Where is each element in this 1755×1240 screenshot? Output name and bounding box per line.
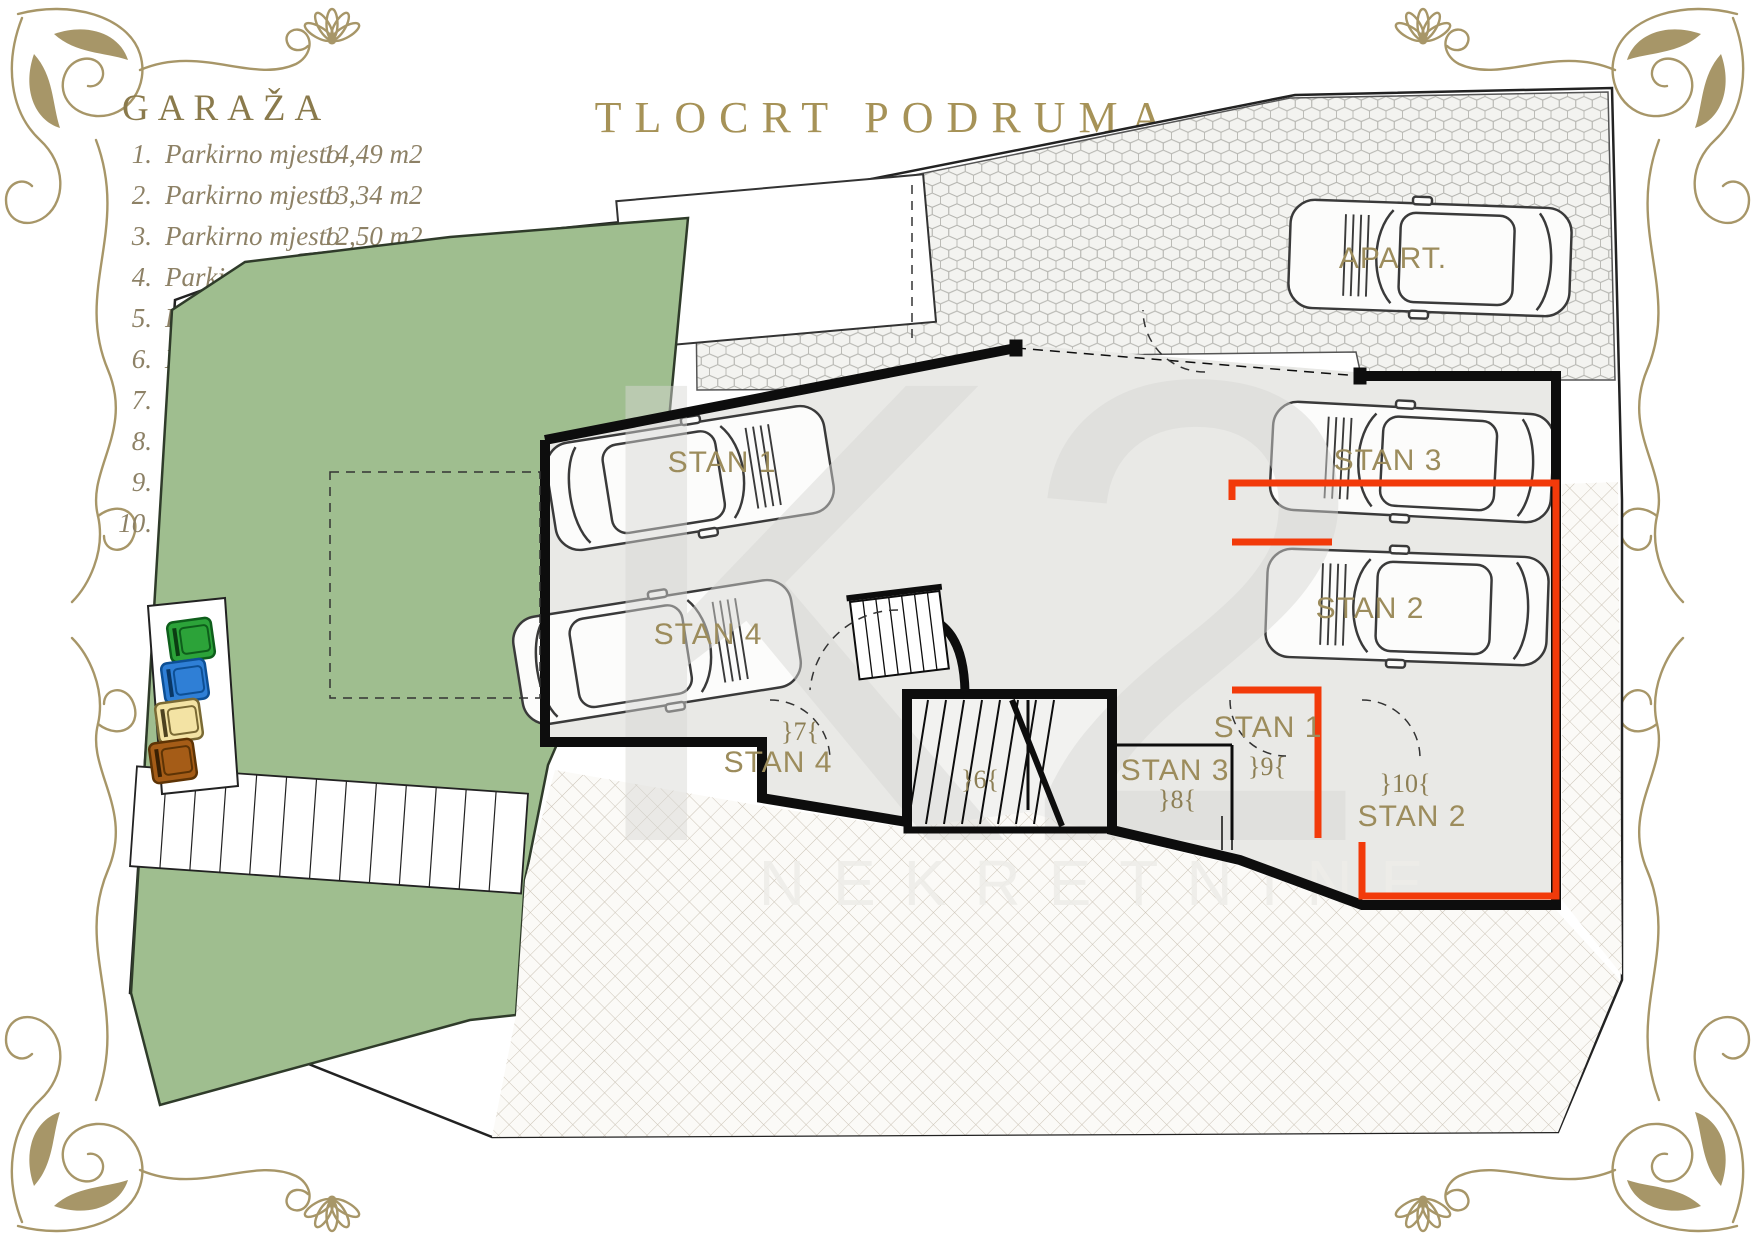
legend-num: 6. bbox=[132, 344, 152, 374]
waste-bin-green bbox=[166, 617, 215, 663]
waste-bin-yellow bbox=[154, 698, 203, 744]
legend-area: 14,49 m2 bbox=[322, 139, 423, 169]
recycling-bins bbox=[148, 598, 238, 794]
room-number-8: }8{ bbox=[1158, 785, 1196, 814]
legend-num: 10. bbox=[118, 508, 152, 538]
room-number-6: }6{ bbox=[961, 765, 999, 794]
page-title: TLOCRT PODRUMA bbox=[595, 93, 1176, 142]
legend-area: 13,34 m2 bbox=[322, 180, 423, 210]
label-room-stan4: STAN 4 bbox=[724, 746, 833, 779]
label-room-stan2: STAN 2 bbox=[1358, 800, 1467, 833]
legend-row: 1. Parkirno mjesto 14,49 m2 bbox=[132, 139, 423, 169]
legend-num: 3. bbox=[131, 221, 152, 251]
room-number-7: }7{ bbox=[781, 717, 819, 746]
watermark-text: NEKRETNINE bbox=[759, 847, 1452, 919]
label-parking-stan4: STAN 4 bbox=[654, 618, 763, 651]
legend-num: 7. bbox=[132, 385, 152, 415]
legend-num: 9. bbox=[132, 467, 152, 497]
unexcavated-hatch-right bbox=[1562, 482, 1622, 975]
legend-row: 2. Parkirno mjesto 13,34 m2 bbox=[132, 180, 423, 210]
legend-num: 5. bbox=[132, 303, 152, 333]
waste-bin-brown bbox=[148, 738, 197, 784]
legend-num: 4. bbox=[132, 262, 152, 292]
basement-floor-plan-page: TLOCRT PODRUMA GARAŽA 1. Parkirno mjesto… bbox=[0, 0, 1755, 1240]
room-number-10: }10{ bbox=[1380, 769, 1431, 798]
label-room-stan3: STAN 3 bbox=[1121, 754, 1230, 787]
basement-floor-plan: TLOCRT PODRUMA GARAŽA 1. Parkirno mjesto… bbox=[0, 0, 1755, 1240]
legend-num: 8. bbox=[132, 426, 152, 456]
interior-stairs bbox=[847, 587, 952, 680]
legend-heading: GARAŽA bbox=[122, 87, 330, 129]
legend-num: 2. bbox=[132, 180, 152, 210]
label-parking-stan1: STAN 1 bbox=[668, 446, 777, 479]
room-number-9: }9{ bbox=[1248, 752, 1286, 781]
waste-bin-blue bbox=[160, 658, 209, 704]
label-parking-stan3: STAN 3 bbox=[1334, 444, 1443, 477]
legend-label: Parkirno mjesto bbox=[164, 180, 340, 210]
legend-label: Parkirno mjesto bbox=[164, 139, 340, 169]
label-parking-apart: APART. bbox=[1339, 242, 1447, 275]
label-room-stan1: STAN 1 bbox=[1214, 711, 1323, 744]
legend-num: 1. bbox=[132, 139, 152, 169]
legend-label: Parkirno mjesto bbox=[164, 221, 340, 251]
label-parking-stan2: STAN 2 bbox=[1316, 592, 1425, 625]
